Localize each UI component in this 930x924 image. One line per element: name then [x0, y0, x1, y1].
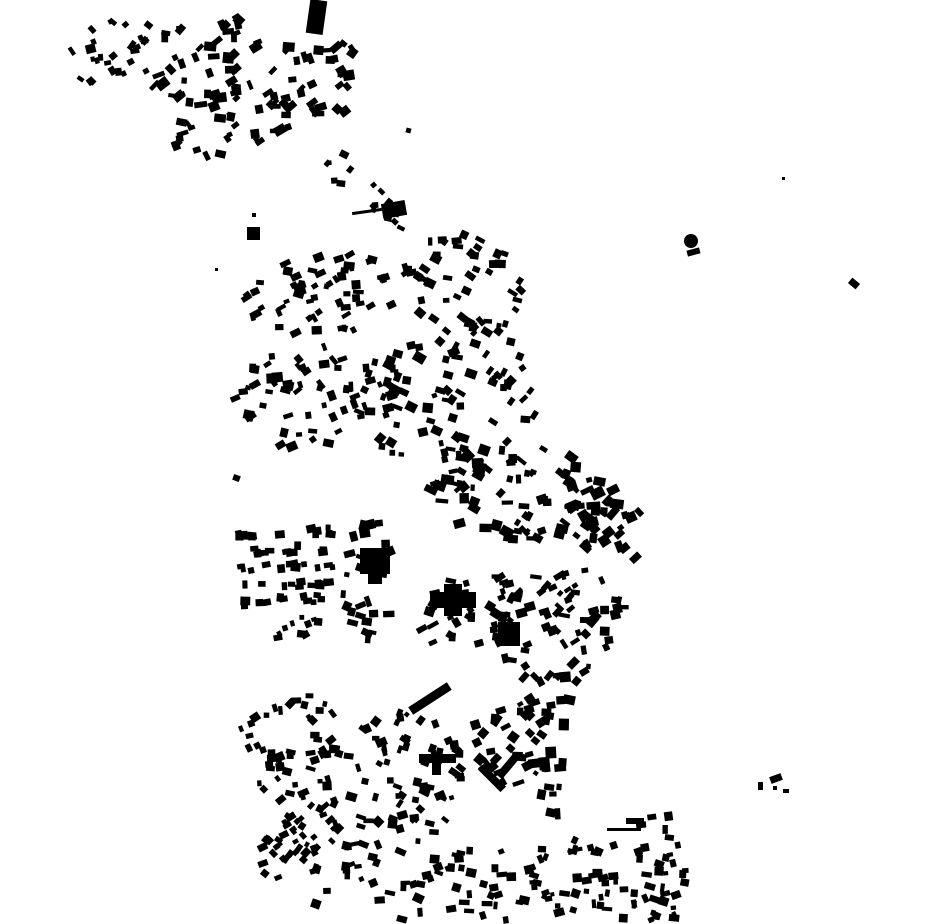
- building-footprint: [558, 758, 567, 767]
- building-footprint: [191, 52, 200, 63]
- building-footprint: [434, 336, 445, 347]
- building-footprint: [545, 712, 554, 720]
- building-footprint: [256, 280, 264, 286]
- building-footprints-canvas: [0, 0, 930, 924]
- building-footprint: [115, 68, 122, 76]
- building-footprint: [506, 337, 516, 346]
- building-footprint: [296, 432, 302, 437]
- isolated-dot-a: [252, 213, 256, 217]
- building-footprint: [108, 51, 118, 61]
- building-footprint: [480, 326, 493, 338]
- building-footprint: [553, 907, 565, 917]
- building-footprint: [415, 343, 423, 351]
- building-footprint: [176, 118, 188, 127]
- building-cluster-left-grid-tail: [273, 615, 322, 641]
- building-footprint: [226, 67, 233, 74]
- building-footprint: [304, 841, 310, 847]
- building-footprint: [369, 610, 379, 618]
- building-footprint: [343, 385, 350, 394]
- building-footprint: [442, 370, 453, 380]
- building-footprint: [259, 402, 267, 409]
- building-footprint: [316, 707, 324, 714]
- building-footprint: [311, 282, 319, 290]
- building-footprint: [282, 266, 293, 276]
- building-footprint: [283, 298, 290, 304]
- building-footprint: [428, 237, 432, 245]
- building-footprint: [526, 386, 534, 395]
- building-footprint: [530, 410, 539, 420]
- building-footprint: [275, 530, 285, 539]
- building-footprint: [566, 656, 580, 670]
- building-footprint: [270, 129, 280, 134]
- building-footprint: [374, 896, 385, 904]
- building-footprint: [507, 397, 516, 407]
- building-footprint: [289, 620, 295, 627]
- building-footprint: [328, 837, 336, 845]
- building-footprint: [344, 250, 355, 260]
- building-footprint: [593, 476, 606, 487]
- building-footprint: [314, 308, 323, 316]
- building-footprint: [415, 715, 426, 726]
- building-footprint: [323, 438, 335, 448]
- building-footprint: [276, 304, 286, 312]
- building-footprint: [313, 736, 322, 743]
- building-footprint: [317, 596, 325, 602]
- building-footprint: [365, 633, 371, 643]
- building-footprint: [377, 187, 385, 195]
- building-footprint: [469, 338, 481, 348]
- building-footprint: [479, 911, 487, 920]
- building-footprint: [499, 446, 506, 455]
- building-footprint: [87, 25, 96, 34]
- building-footprint: [428, 313, 440, 324]
- building-footprint: [517, 590, 523, 597]
- building-footprint: [507, 730, 520, 743]
- building-footprint: [453, 518, 466, 529]
- building-footprint: [299, 615, 304, 620]
- building-footprint: [250, 129, 260, 139]
- building-footprint: [358, 876, 364, 882]
- building-footprint: [570, 888, 581, 899]
- building-footprint: [356, 823, 366, 830]
- building-footprint: [372, 793, 379, 802]
- building-footprint: [580, 628, 591, 639]
- building-footprint: [250, 365, 259, 374]
- building-footprint: [451, 882, 462, 893]
- building-footprint: [275, 439, 287, 450]
- building-footprint: [343, 752, 353, 759]
- plaza-big-square: [498, 622, 520, 646]
- isolated-dot-d: [405, 127, 411, 133]
- building-footprint: [422, 402, 433, 413]
- building-footprint: [471, 737, 482, 748]
- building-footprint: [554, 808, 560, 819]
- building-footprint: [456, 466, 467, 476]
- building-footprint: [529, 871, 540, 879]
- building-footprint: [570, 637, 580, 646]
- building-footprint: [258, 581, 266, 587]
- building-footprint: [326, 390, 337, 402]
- building-footprint: [406, 341, 416, 350]
- isolated-dot-b: [215, 268, 218, 271]
- building-footprint: [496, 872, 507, 878]
- building-footprint: [309, 755, 320, 765]
- building-footprint: [443, 298, 450, 303]
- building-footprint: [293, 354, 303, 365]
- building-footprint: [589, 533, 598, 543]
- building-footprint: [609, 841, 618, 850]
- building-footprint: [275, 794, 287, 805]
- building-footprint: [512, 779, 525, 787]
- building-footprint: [482, 901, 493, 907]
- building-footprint: [292, 838, 299, 845]
- building-footprint: [611, 596, 618, 603]
- building-footprint: [372, 815, 385, 828]
- building-footprint: [495, 259, 506, 268]
- building-footprint: [329, 355, 339, 366]
- building-footprint: [493, 890, 503, 899]
- building-footprint: [401, 881, 411, 885]
- building-footprint: [482, 350, 490, 359]
- building-footprint: [533, 770, 539, 776]
- se-outlier-d: [783, 789, 789, 793]
- building-footprint: [365, 301, 375, 310]
- building-footprint: [680, 878, 690, 887]
- building-footprint: [333, 254, 345, 263]
- building-footprint: [570, 462, 581, 473]
- building-footprint: [393, 421, 400, 428]
- building-footprint: [488, 417, 498, 426]
- building-footprint: [600, 507, 607, 514]
- building-footprint: [429, 854, 439, 864]
- building-footprint: [601, 880, 609, 886]
- building-footprint: [204, 90, 211, 99]
- building-footprint: [313, 45, 324, 55]
- building-footprint: [630, 889, 638, 897]
- building-footprint: [350, 326, 357, 334]
- building-footprint: [231, 85, 242, 96]
- building-footprint: [571, 582, 578, 589]
- building-footprint: [394, 847, 406, 857]
- building-footprint: [396, 799, 404, 808]
- building-footprint: [331, 177, 338, 183]
- building-footprint: [404, 711, 410, 717]
- building-footprint: [277, 564, 285, 573]
- building-cluster-left-grid-row-4: [242, 577, 334, 590]
- building-footprint: [278, 706, 283, 715]
- building-footprint: [557, 590, 564, 597]
- building-footprint: [297, 88, 306, 98]
- building-footprint: [664, 811, 674, 821]
- building-footprint: [342, 82, 352, 92]
- building-footprint: [185, 98, 193, 107]
- building-footprint: [518, 671, 530, 683]
- building-footprint: [291, 697, 301, 703]
- building-footprint: [274, 775, 281, 782]
- building-footprint: [453, 293, 462, 301]
- building-footprint: [506, 459, 515, 466]
- building-cluster-southwest-wedge: [257, 796, 345, 881]
- building-footprint: [375, 760, 383, 768]
- building-footprint: [537, 526, 547, 535]
- building-footprint: [493, 902, 498, 910]
- building-footprint: [330, 55, 338, 64]
- building-footprint: [282, 767, 293, 777]
- building-footprint: [384, 890, 395, 897]
- building-footprint: [435, 498, 448, 503]
- building-footprint: [340, 590, 346, 598]
- building-footprint: [293, 56, 300, 65]
- building-footprint: [308, 428, 317, 433]
- building-footprint: [451, 237, 462, 244]
- building-footprint: [307, 801, 315, 809]
- building-footprint: [473, 243, 483, 252]
- building-footprint: [525, 751, 534, 758]
- building-footprint: [283, 412, 294, 419]
- building-footprint: [477, 443, 491, 456]
- building-footprint: [559, 671, 571, 682]
- building-footprint: [572, 873, 582, 882]
- building-footprint: [559, 639, 568, 650]
- building-footprint: [425, 819, 435, 827]
- water-tower-base: [686, 247, 700, 256]
- building-footprint: [257, 780, 262, 786]
- building-footprint: [463, 579, 470, 587]
- building-footprint: [669, 859, 677, 868]
- building-footprint: [246, 80, 253, 90]
- se-outlier-c: [773, 786, 777, 790]
- building-footprint: [455, 773, 464, 779]
- building-footprint: [299, 831, 307, 840]
- building-footprint: [530, 736, 540, 746]
- building-footprint: [108, 18, 117, 27]
- building-footprint: [679, 870, 686, 878]
- building-footprint: [441, 816, 450, 824]
- building-footprint: [613, 876, 618, 885]
- building-footprint: [68, 46, 76, 56]
- building-cluster-left-grid-row-1: [235, 524, 336, 541]
- building-footprint: [282, 625, 289, 632]
- building-footprint: [307, 583, 316, 589]
- building-footprint: [345, 791, 358, 802]
- building-footprint: [321, 402, 327, 408]
- building-footprint: [543, 763, 550, 772]
- building-footprint: [620, 886, 629, 892]
- building-footprint: [387, 819, 397, 829]
- building-footprint: [312, 252, 324, 264]
- building-footprint: [215, 149, 227, 158]
- building-footprint: [370, 715, 382, 727]
- building-footprint: [442, 326, 452, 335]
- building-cluster-southwest-blocks: [238, 693, 354, 805]
- building-footprint: [517, 701, 524, 707]
- building-footprint: [427, 620, 440, 630]
- building-footprint: [90, 56, 95, 62]
- building-footprint: [240, 597, 250, 606]
- building-footprint: [485, 366, 494, 376]
- building-footprint: [545, 747, 556, 759]
- building-footprint: [250, 287, 261, 297]
- building-footprint: [230, 394, 241, 403]
- west-blob-main: [360, 548, 390, 574]
- building-footprint: [496, 323, 502, 328]
- building-footprint: [412, 796, 419, 803]
- building-footprint: [318, 360, 329, 369]
- building-footprint: [237, 563, 243, 569]
- building-footprint: [322, 701, 328, 707]
- building-footprint: [414, 306, 427, 319]
- water-tower-circle: [684, 234, 698, 248]
- building-footprint: [306, 693, 314, 698]
- building-footprint: [536, 729, 547, 740]
- building-footprint: [304, 619, 313, 628]
- building-footprint: [556, 784, 562, 791]
- building-footprint: [343, 291, 350, 296]
- building-footprint: [472, 265, 481, 273]
- building-footprint: [586, 477, 593, 483]
- long-thin-wall: [607, 828, 641, 831]
- building-footprint: [349, 531, 359, 542]
- building-footprint: [142, 67, 150, 74]
- building-footprint: [571, 676, 582, 687]
- building-footprint: [466, 847, 473, 855]
- t-building-bar: [419, 754, 456, 763]
- building-footprint: [530, 574, 542, 580]
- building-footprint: [503, 916, 509, 924]
- building-footprint: [569, 906, 577, 914]
- building-footprint: [300, 701, 308, 710]
- building-footprint: [486, 748, 496, 756]
- building-footprint: [181, 77, 187, 83]
- building-footprint: [324, 283, 330, 289]
- building-footprint: [246, 532, 256, 541]
- building-footprint: [264, 713, 270, 718]
- building-footprint: [351, 280, 361, 289]
- isolated-dot-northeast: [782, 177, 785, 180]
- building-footprint: [604, 636, 613, 645]
- building-footprint: [371, 358, 378, 366]
- building-footprint: [459, 493, 469, 503]
- building-footprint: [438, 440, 444, 447]
- building-footprint: [353, 289, 364, 294]
- building-footprint: [502, 437, 512, 447]
- building-footprint: [192, 146, 201, 154]
- building-footprint: [518, 503, 529, 509]
- building-footprint: [383, 611, 395, 618]
- building-footprint: [512, 306, 520, 314]
- building-footprint: [515, 607, 528, 618]
- building-footprint: [262, 598, 271, 606]
- building-footprint: [536, 789, 546, 800]
- building-footprint: [555, 903, 560, 908]
- building-footprint: [355, 763, 361, 772]
- building-footprint: [279, 427, 289, 438]
- building-footprint: [393, 783, 403, 790]
- building-footprint: [502, 320, 509, 328]
- building-footprint: [398, 452, 404, 457]
- building-footprint: [670, 890, 681, 900]
- building-footprint: [515, 352, 524, 362]
- building-footprint: [492, 248, 503, 259]
- figure-ground-map: [0, 0, 930, 924]
- building-footprint: [261, 561, 271, 569]
- building-footprint: [305, 412, 312, 420]
- building-footprint: [329, 564, 335, 570]
- building-footprint: [464, 908, 474, 913]
- building-footprint: [274, 874, 283, 881]
- building-footprint: [445, 577, 456, 584]
- building-footprint: [265, 761, 274, 768]
- building-footprint: [381, 540, 390, 548]
- building-footprint: [361, 777, 369, 785]
- building-footprint: [289, 549, 298, 556]
- building-footprint: [298, 280, 305, 287]
- building-footprint: [431, 719, 440, 729]
- building-footprint: [334, 365, 341, 371]
- building-footprint: [104, 60, 112, 66]
- building-footprint: [322, 781, 332, 790]
- building-footprint: [385, 436, 398, 448]
- building-footprint: [368, 878, 379, 888]
- building-footprint: [502, 500, 513, 504]
- building-footprint: [479, 880, 488, 889]
- building-footprint: [512, 297, 522, 304]
- building-footprint: [285, 790, 295, 798]
- building-footprint: [417, 908, 423, 917]
- building-footprint: [426, 417, 436, 424]
- building-footprint: [581, 567, 588, 573]
- building-footprint: [506, 872, 516, 881]
- building-footprint: [572, 531, 580, 539]
- building-footprint: [525, 728, 535, 738]
- building-footprint: [499, 580, 510, 585]
- building-footprint: [447, 413, 458, 423]
- building-footprint: [389, 450, 395, 456]
- building-footprint: [662, 825, 667, 834]
- building-footprint: [299, 592, 308, 601]
- building-cluster-mid-band-west: [230, 343, 361, 453]
- building-footprint: [343, 549, 356, 558]
- building-footprint: [268, 66, 277, 75]
- building-footprint: [416, 624, 428, 634]
- building-footprint: [397, 790, 407, 800]
- building-footprint: [275, 324, 284, 330]
- building-footprint: [430, 425, 443, 437]
- building-footprint: [208, 53, 220, 60]
- building-footprint: [85, 43, 97, 54]
- building-footprint: [341, 311, 351, 320]
- building-footprint: [479, 524, 491, 533]
- building-footprint: [339, 149, 350, 159]
- building-footprint: [518, 364, 526, 372]
- building-footprint: [245, 732, 254, 739]
- building-footprint: [382, 403, 394, 413]
- building-footprint: [598, 894, 603, 901]
- building-footprint: [294, 541, 301, 550]
- building-footprint: [580, 645, 587, 655]
- building-footprint: [297, 381, 303, 389]
- se-outlier-b: [769, 773, 783, 784]
- building-footprint: [461, 285, 472, 296]
- building-footprint: [240, 531, 247, 540]
- building-footprint: [231, 121, 240, 130]
- building-footprint: [591, 507, 601, 515]
- west-blob-annex: [368, 572, 382, 584]
- building-cluster-south-column: [536, 671, 575, 819]
- building-footprint: [404, 400, 418, 413]
- building-footprint: [347, 619, 359, 627]
- building-footprint: [301, 561, 307, 567]
